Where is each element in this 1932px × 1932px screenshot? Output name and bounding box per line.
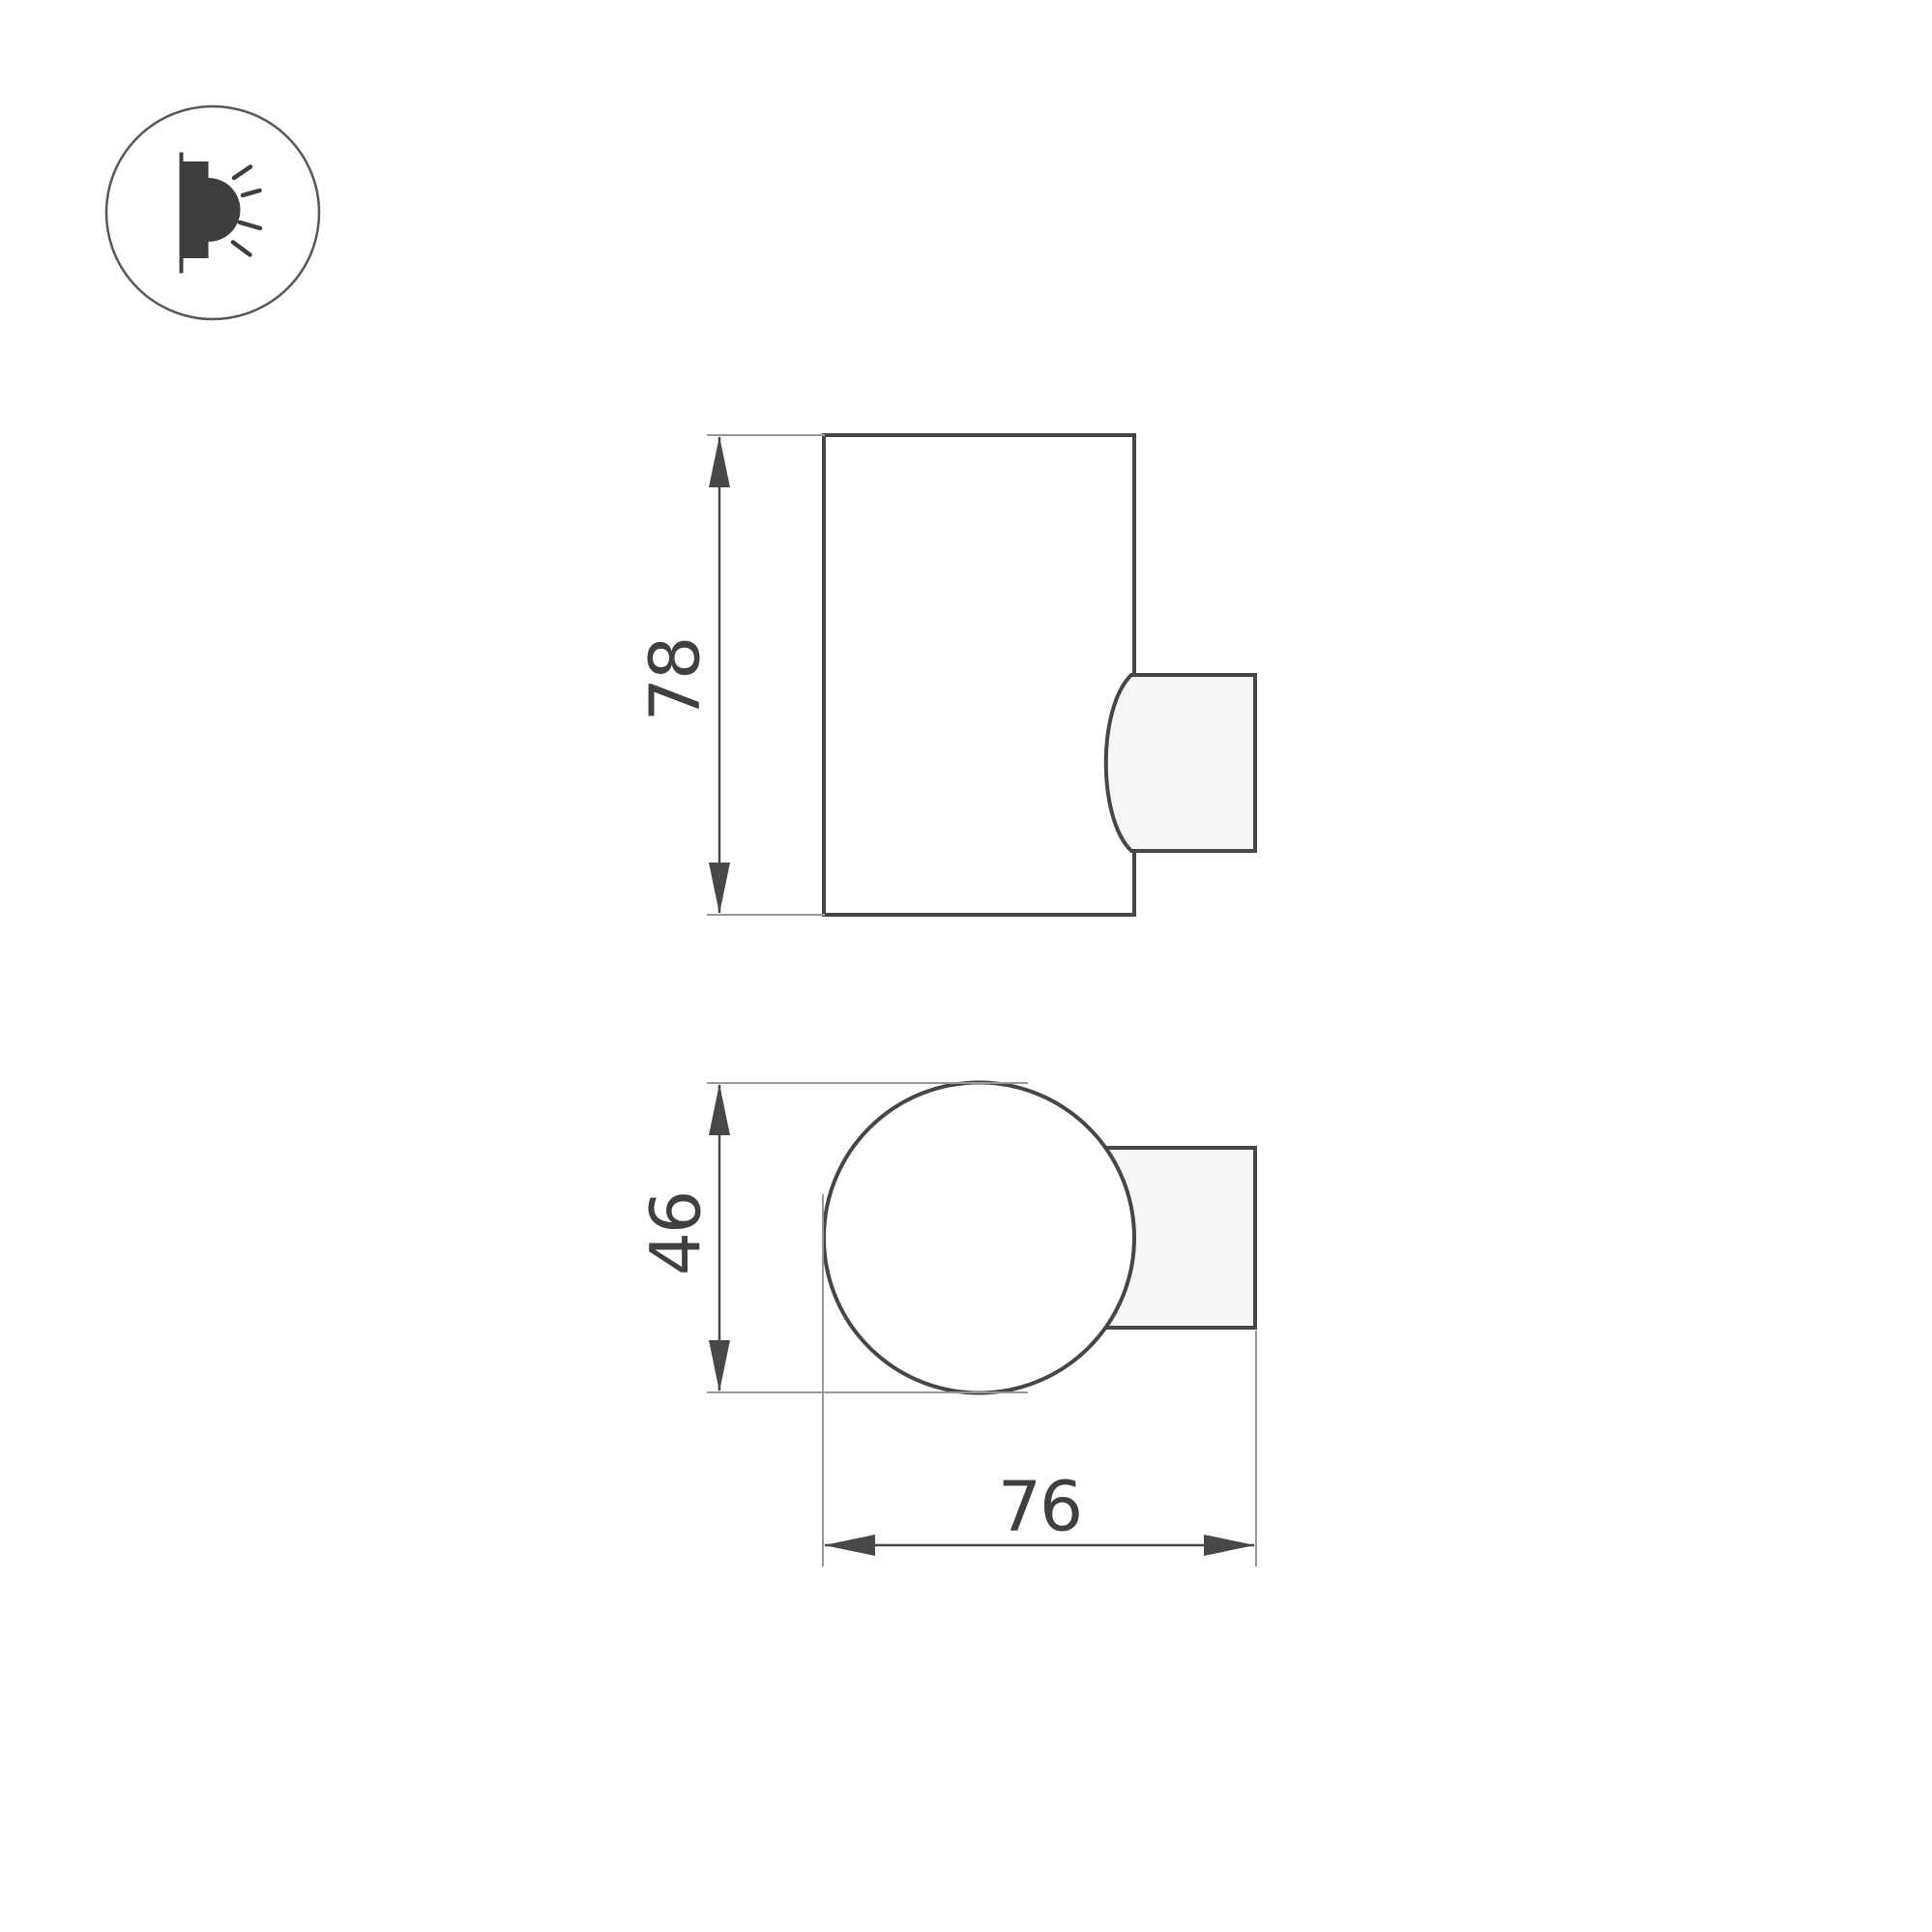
technical-drawing: 78 46 76 [0, 0, 1932, 1932]
dimension-drawing-canvas: 78 46 76 [0, 0, 1932, 1932]
side-view-figure [824, 435, 1255, 915]
icon-lamp-body [184, 161, 209, 258]
wall-lamp-light-direction-icon [106, 106, 319, 319]
height-dimension-label: 78 [635, 638, 716, 721]
arrowhead-down [709, 863, 730, 914]
wall-mount-side [1106, 675, 1255, 851]
lamp-body-side [824, 435, 1134, 915]
arrowhead-left [824, 1535, 875, 1556]
diameter-dimension-label: 46 [636, 1192, 717, 1275]
top-view-figure [824, 1083, 1255, 1393]
depth-dimension-label: 76 [998, 1467, 1081, 1547]
arrowhead-up [709, 1084, 730, 1135]
lamp-body-top [824, 1083, 1134, 1393]
icon-wall-line [180, 153, 184, 274]
arrowhead-down [709, 1340, 730, 1391]
height-dimension: 78 [635, 435, 826, 915]
arrowhead-right [1204, 1535, 1255, 1556]
arrowhead-up [709, 436, 730, 487]
